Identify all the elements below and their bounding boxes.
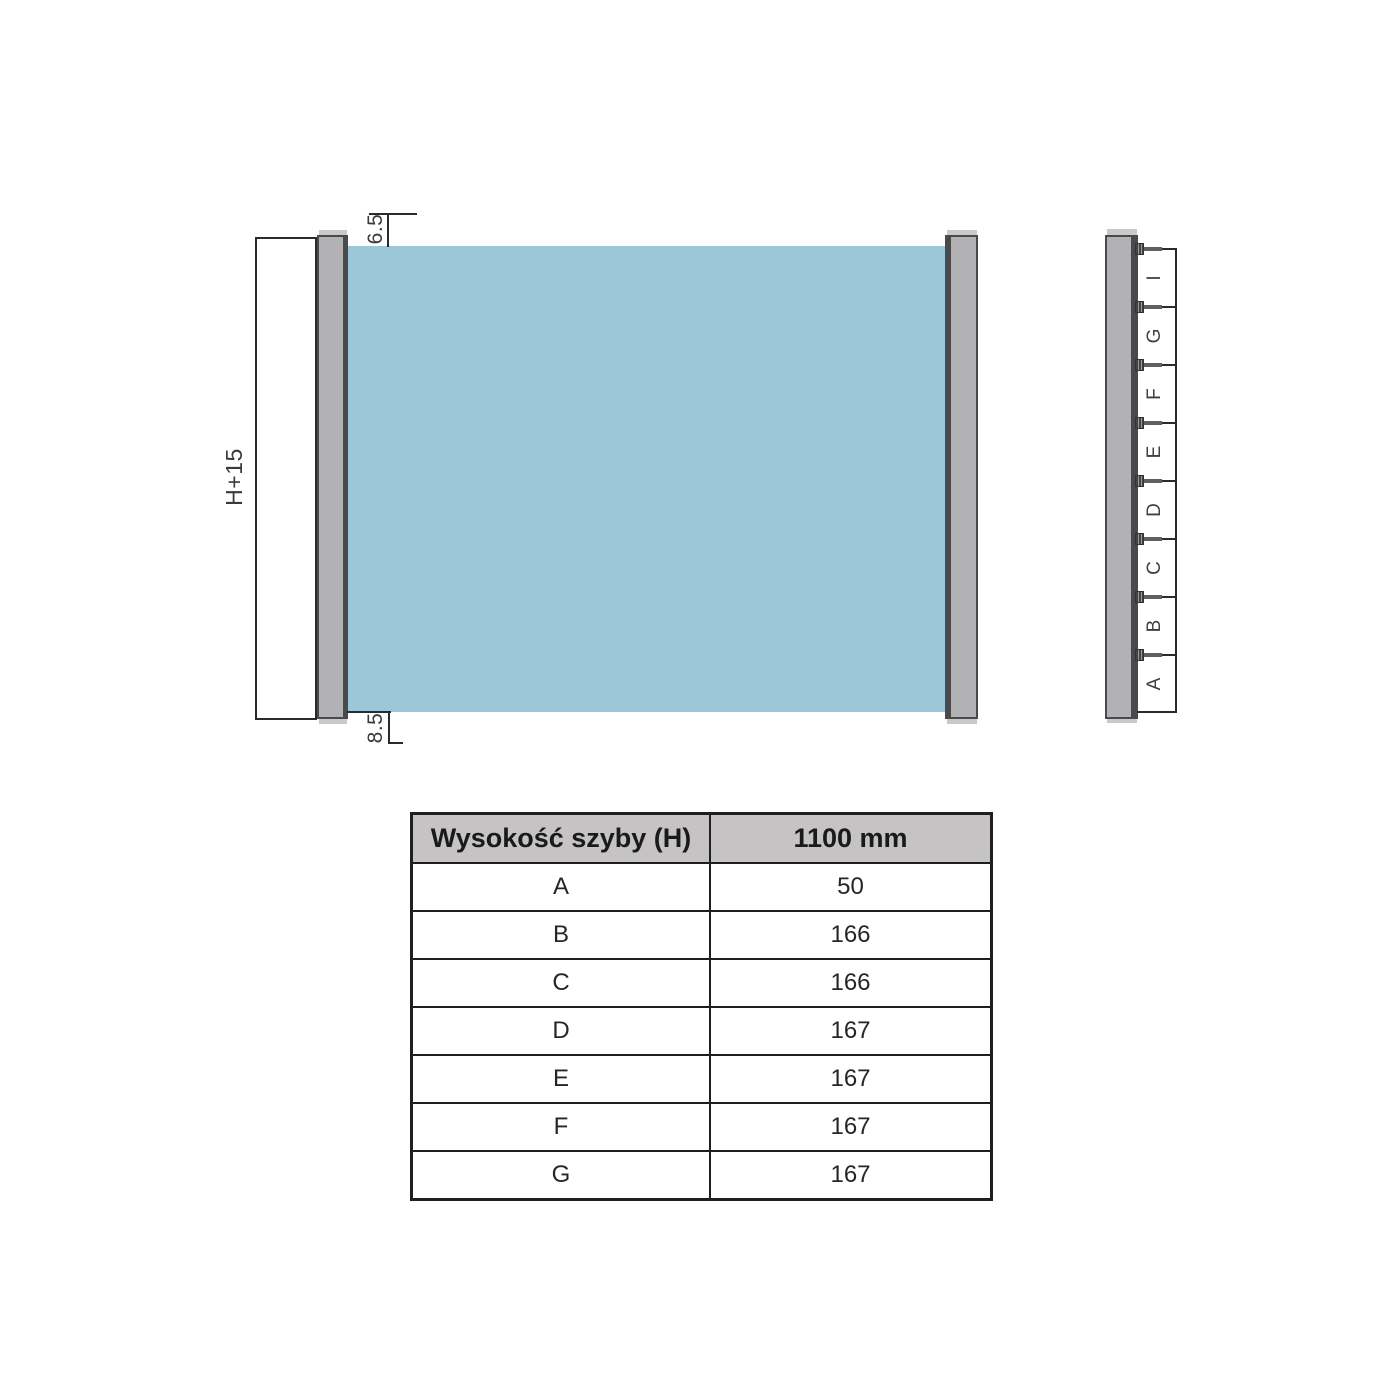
height-dimension-bracket xyxy=(255,237,317,720)
segment-label: A xyxy=(1144,662,1166,706)
screw-shaft-icon xyxy=(1144,653,1162,657)
bottom-gap-dimension-label: 8.5 xyxy=(365,706,387,750)
screw-shaft-icon xyxy=(1144,595,1162,599)
height-dimension-label: H+15 xyxy=(222,437,246,517)
screw-icon xyxy=(1135,649,1144,661)
row-label: D xyxy=(412,1007,711,1055)
screw-shaft-icon xyxy=(1144,305,1162,309)
segment-label: C xyxy=(1144,546,1166,590)
row-value: 167 xyxy=(710,1007,992,1055)
right-mounting-profile xyxy=(945,235,978,719)
row-value: 50 xyxy=(710,863,992,911)
bottom-gap-end-tick xyxy=(388,742,403,744)
segment-label: B xyxy=(1144,604,1166,648)
screw-shaft-icon xyxy=(1144,363,1162,367)
row-label: G xyxy=(412,1151,711,1200)
screw-shaft-icon xyxy=(1144,421,1162,425)
segment-label: D xyxy=(1144,488,1166,532)
row-value: 167 xyxy=(710,1055,992,1103)
table-row: A 50 xyxy=(412,863,992,911)
row-value: 166 xyxy=(710,911,992,959)
segment-bottom-tick xyxy=(1137,711,1177,713)
row-label: A xyxy=(412,863,711,911)
screw-icon xyxy=(1135,301,1144,313)
screw-icon xyxy=(1135,475,1144,487)
table-header-row: Wysokość szyby (H) 1100 mm xyxy=(412,814,992,864)
table-row: C 166 xyxy=(412,959,992,1007)
screw-icon xyxy=(1135,591,1144,603)
table-row: G 167 xyxy=(412,1151,992,1200)
row-value: 167 xyxy=(710,1103,992,1151)
segment-label: F xyxy=(1144,372,1166,416)
table-row: E 167 xyxy=(412,1055,992,1103)
table-row: D 167 xyxy=(412,1007,992,1055)
screw-icon xyxy=(1135,243,1144,255)
row-label: E xyxy=(412,1055,711,1103)
table-row: B 166 xyxy=(412,911,992,959)
technical-drawing-page: H+15 6.5 8.5 I G F E D C B A xyxy=(0,0,1400,1400)
row-label: B xyxy=(412,911,711,959)
screw-icon xyxy=(1135,417,1144,429)
row-value: 166 xyxy=(710,959,992,1007)
segment-label: E xyxy=(1144,430,1166,474)
side-view-profile xyxy=(1105,235,1138,719)
segment-label: I xyxy=(1144,256,1166,300)
top-gap-dimension-label: 6.5 xyxy=(365,207,387,251)
row-label: F xyxy=(412,1103,711,1151)
left-mounting-profile xyxy=(317,235,348,719)
screw-shaft-icon xyxy=(1144,247,1162,251)
screw-icon xyxy=(1135,359,1144,371)
bottom-gap-extension-line xyxy=(388,711,390,744)
glass-pane xyxy=(347,246,946,712)
table-header-value: 1100 mm xyxy=(710,814,992,864)
screw-shaft-icon xyxy=(1144,479,1162,483)
screw-shaft-icon xyxy=(1144,537,1162,541)
screw-icon xyxy=(1135,533,1144,545)
row-label: C xyxy=(412,959,711,1007)
segment-label: G xyxy=(1144,314,1166,358)
table-row: F 167 xyxy=(412,1103,992,1151)
row-value: 167 xyxy=(710,1151,992,1200)
spec-table: Wysokość szyby (H) 1100 mm A 50 B 166 C … xyxy=(410,812,993,1201)
table-header-height: Wysokość szyby (H) xyxy=(412,814,711,864)
